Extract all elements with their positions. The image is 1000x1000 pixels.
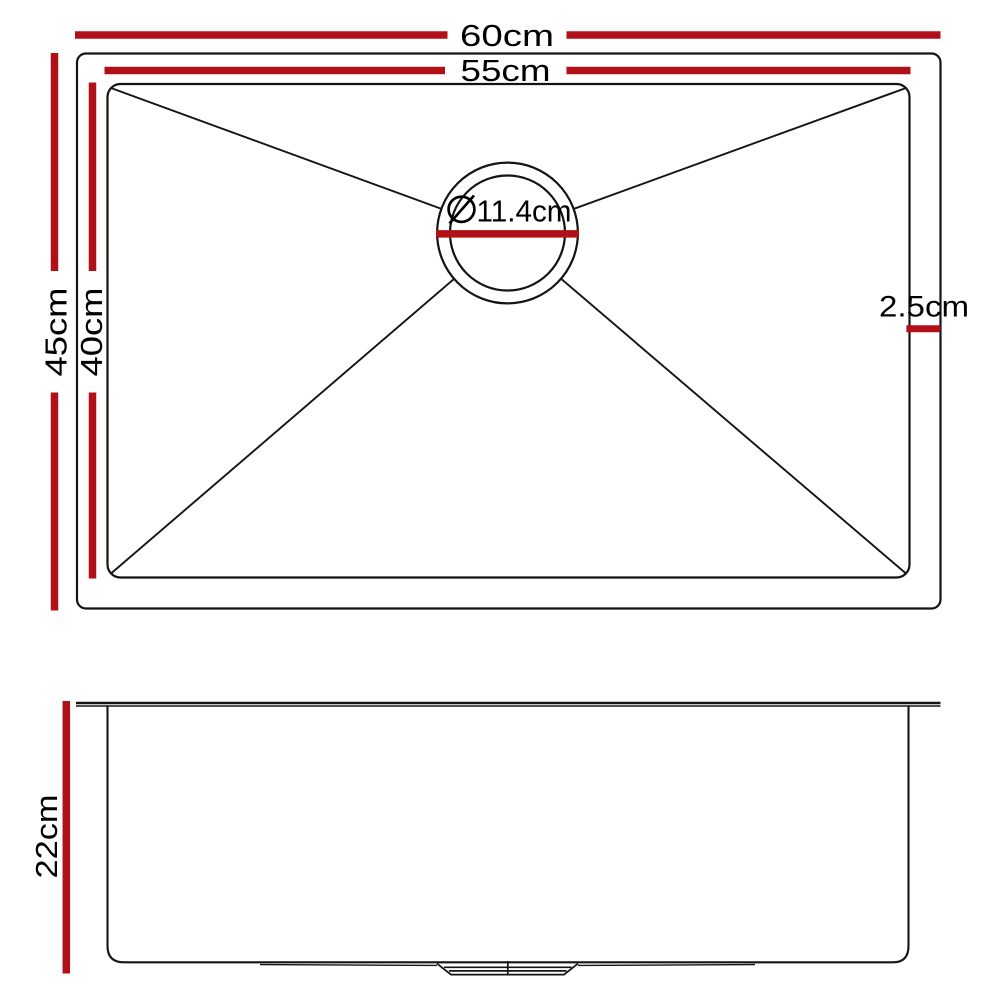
svg-text:60cm: 60cm: [460, 18, 554, 53]
svg-text:45cm: 45cm: [39, 288, 74, 377]
svg-text:2.5cm: 2.5cm: [879, 291, 969, 324]
svg-text:55cm: 55cm: [461, 53, 551, 88]
svg-text:22cm: 22cm: [29, 795, 64, 879]
svg-text:11.4cm: 11.4cm: [477, 194, 572, 229]
svg-text:40cm: 40cm: [74, 288, 109, 377]
